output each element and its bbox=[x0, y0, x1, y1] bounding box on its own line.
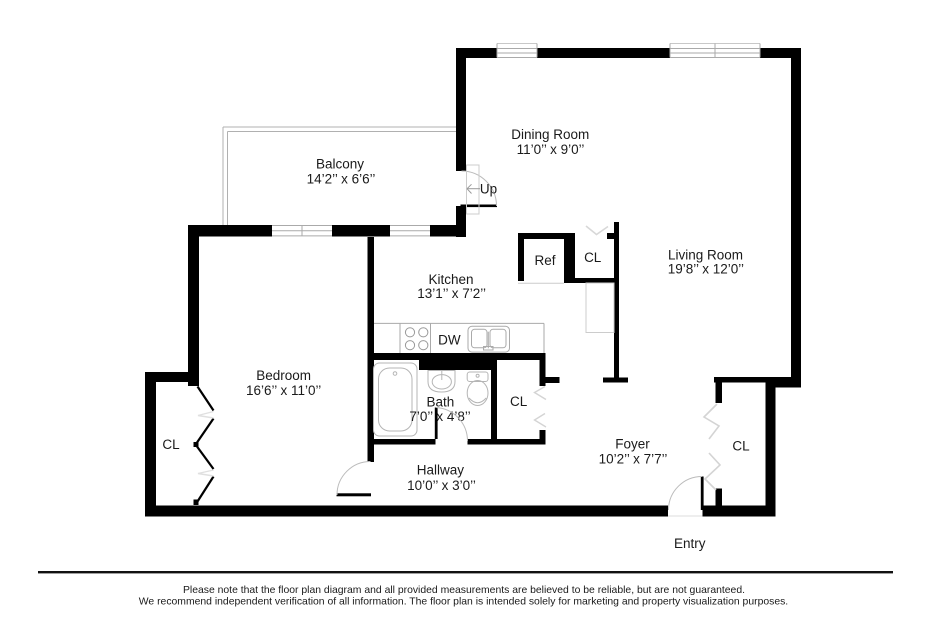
svg-text:Living Room: Living Room bbox=[668, 248, 743, 263]
svg-text:Hallway: Hallway bbox=[417, 462, 465, 477]
svg-text:CL: CL bbox=[732, 438, 750, 453]
svg-text:Dining Room: Dining Room bbox=[511, 127, 589, 142]
svg-text:Please note that the floor pla: Please note that the floor plan diagram … bbox=[183, 585, 745, 596]
svg-text:Up: Up bbox=[480, 182, 497, 197]
svg-text:Balcony: Balcony bbox=[316, 157, 364, 172]
svg-text:CL: CL bbox=[584, 250, 602, 265]
svg-text:DW: DW bbox=[438, 332, 461, 347]
svg-text:Bedroom: Bedroom bbox=[256, 368, 311, 383]
svg-text:19’8’’ x 12’0’’: 19’8’’ x 12’0’’ bbox=[668, 261, 744, 276]
svg-text:CL: CL bbox=[162, 437, 180, 452]
svg-text:We recommend independent verif: We recommend independent verification of… bbox=[139, 597, 788, 608]
svg-text:10’2’’ x 7’7’’: 10’2’’ x 7’7’’ bbox=[599, 451, 668, 466]
svg-text:Bath: Bath bbox=[427, 395, 455, 410]
svg-text:Entry: Entry bbox=[674, 536, 706, 551]
svg-text:10’0’’ x 3’0’’: 10’0’’ x 3’0’’ bbox=[407, 478, 476, 493]
svg-text:CL: CL bbox=[510, 394, 528, 409]
svg-text:Ref: Ref bbox=[534, 253, 555, 268]
svg-text:Kitchen: Kitchen bbox=[428, 272, 473, 287]
svg-text:Foyer: Foyer bbox=[615, 436, 650, 451]
svg-text:16’6’’ x 11’0’’: 16’6’’ x 11’0’’ bbox=[246, 383, 321, 398]
svg-text:11’0’’ x 9’0’’: 11’0’’ x 9’0’’ bbox=[517, 142, 585, 157]
svg-text:14’2’’ x 6’6’’: 14’2’’ x 6’6’’ bbox=[307, 172, 376, 187]
svg-text:13’1’’ x 7’2’’: 13’1’’ x 7’2’’ bbox=[417, 286, 486, 301]
